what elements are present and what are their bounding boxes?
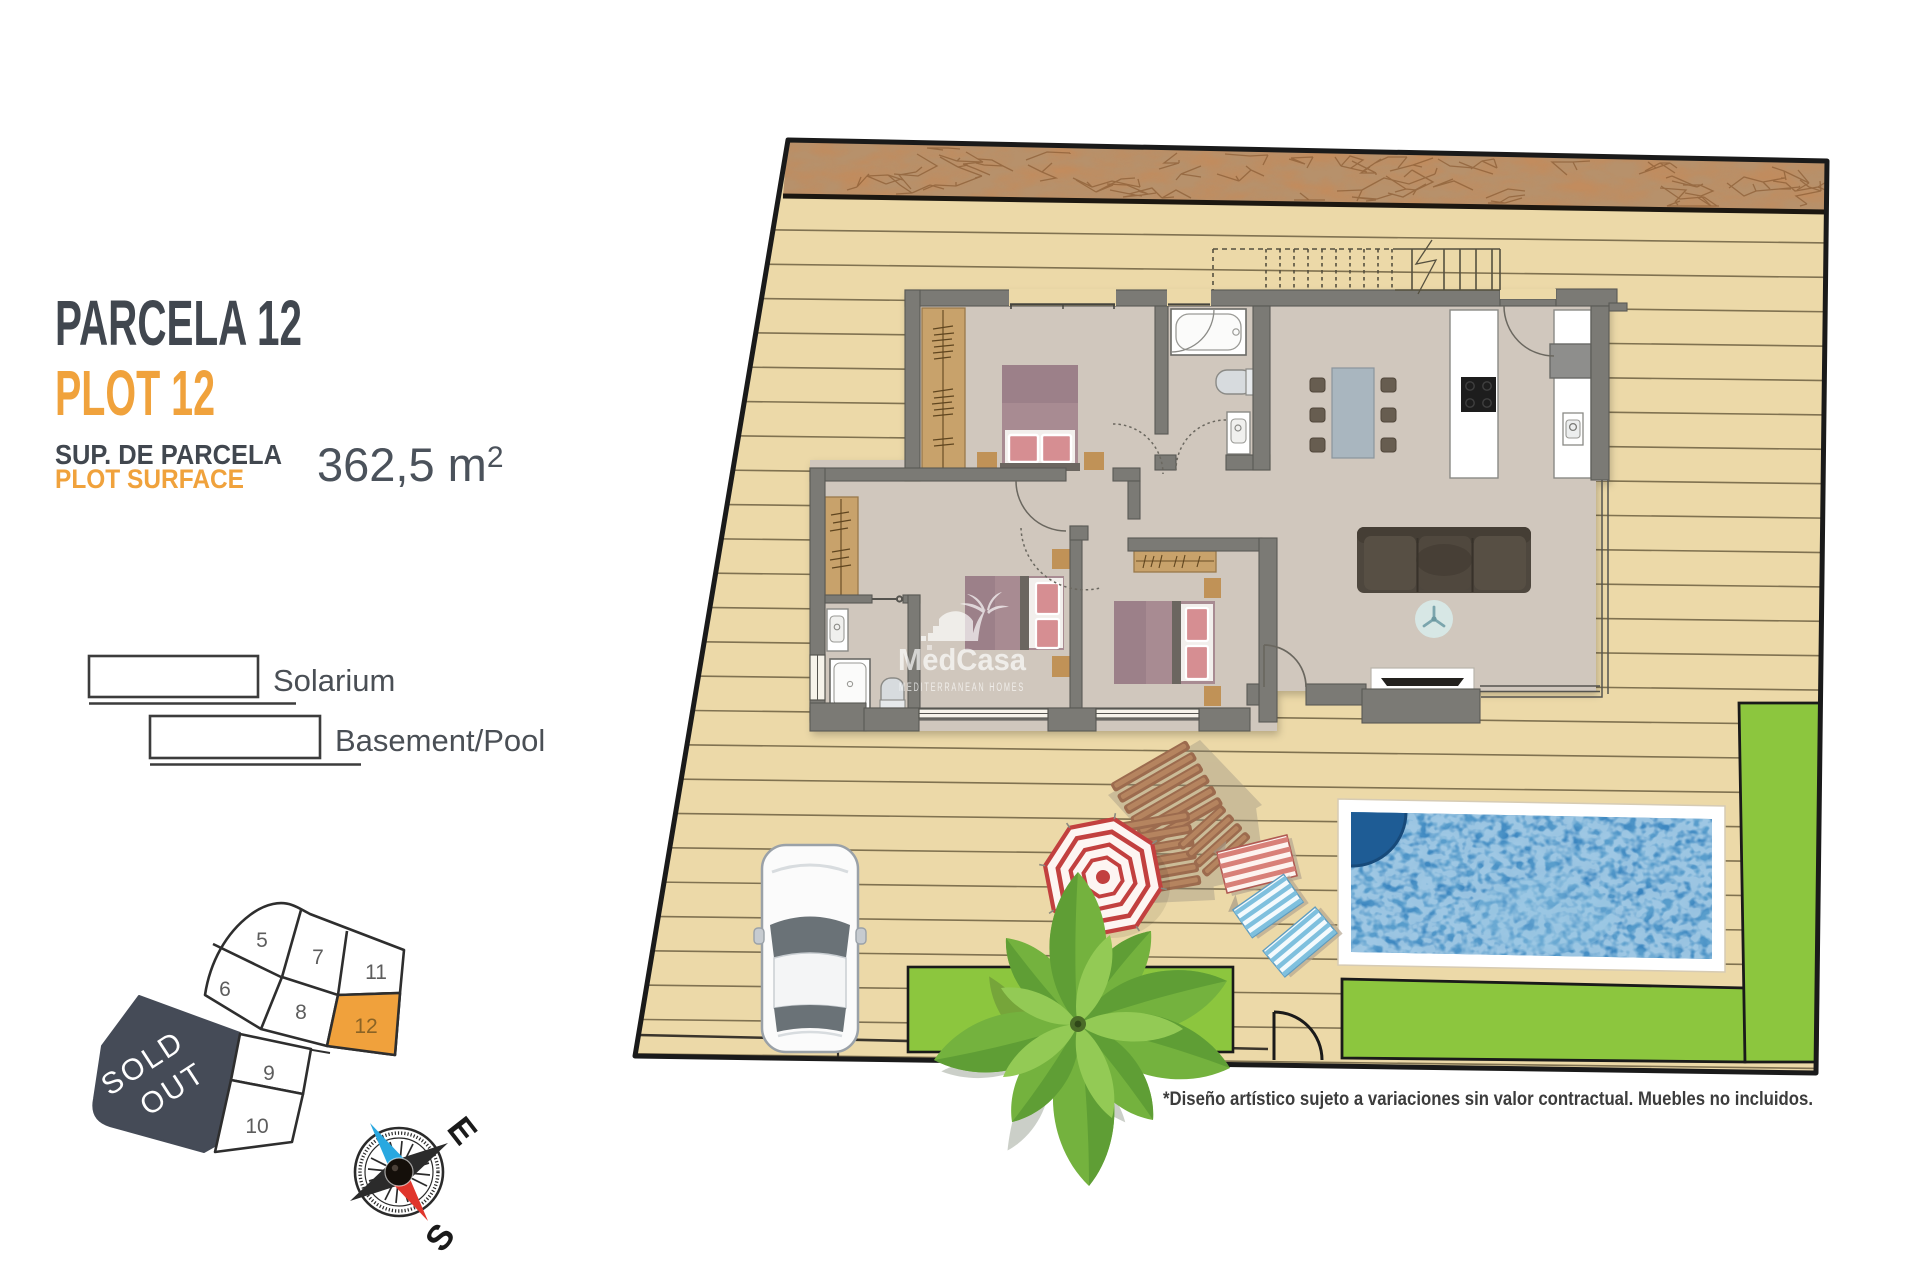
svg-text:6: 6 [219, 978, 231, 1001]
svg-text:12: 12 [354, 1015, 377, 1038]
svg-text:PLOT SURFACE: PLOT SURFACE [55, 464, 244, 494]
svg-text:PARCELA 12: PARCELA 12 [55, 287, 302, 359]
svg-text:MedCasa: MedCasa [898, 642, 1027, 677]
svg-text:Basement/Pool: Basement/Pool [335, 723, 545, 758]
svg-text:Solarium: Solarium [273, 663, 395, 698]
svg-text:7: 7 [312, 946, 324, 969]
svg-text:5: 5 [256, 929, 268, 952]
svg-text:362,5 m2: 362,5 m2 [317, 438, 504, 491]
svg-text:PLOT 12: PLOT 12 [55, 357, 215, 429]
svg-text:11: 11 [365, 961, 387, 984]
svg-text:10: 10 [245, 1115, 268, 1138]
svg-text:8: 8 [295, 1001, 307, 1024]
svg-text:MEDITERRANEAN HOMES: MEDITERRANEAN HOMES [899, 682, 1025, 694]
svg-text:9: 9 [263, 1062, 275, 1085]
svg-text:*Diseño artístico sujeto a var: *Diseño artístico sujeto a variaciones s… [1163, 1089, 1813, 1110]
